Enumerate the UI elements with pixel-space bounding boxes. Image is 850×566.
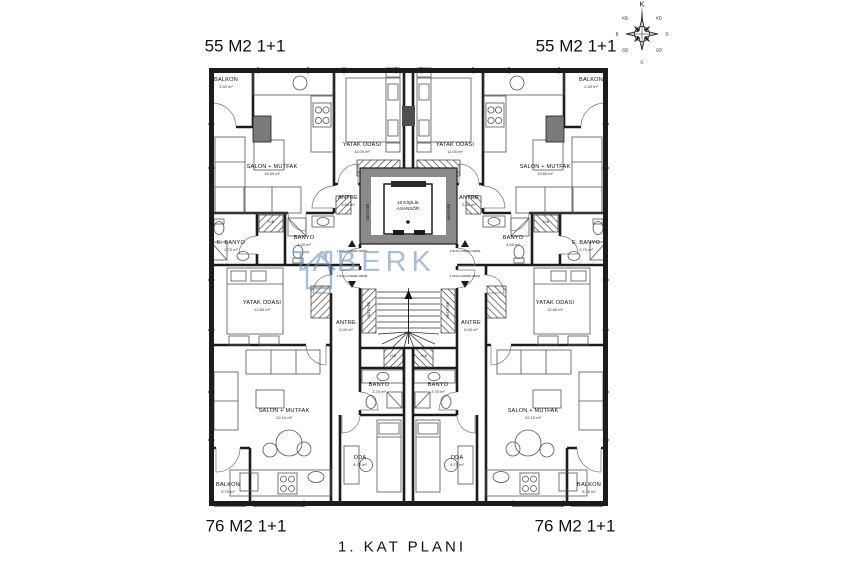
unit-title-top-left: 55 M2 1+1 <box>205 35 286 56</box>
elevator-symbol <box>406 220 410 224</box>
room-label-bl-oda: ODA8.70 m² <box>353 455 367 467</box>
room-label-tr-antre: ANTRE3.60 m² <box>459 195 479 207</box>
spine-wall <box>404 68 413 504</box>
compass-label-s: G <box>640 60 643 65</box>
shaft-label-br-hb: H.B <box>421 354 427 358</box>
compass-label-ne: KD <box>656 16 662 21</box>
vestiyer-label-right-bottom: VESTİYER <box>446 302 450 319</box>
compass-label-e: D <box>665 32 668 37</box>
plan-title: 1. KAT PLANI <box>338 539 466 558</box>
entrance-label-4: 4 NOLU DAİRE GİRİŞİ <box>450 275 481 279</box>
room-label-br-oda: ODA8.70 m² <box>450 455 464 467</box>
room-label-br-banyo: BANYO3.70 m² <box>428 382 449 394</box>
compass-label-se: GD <box>656 48 662 53</box>
compass-label-w: B <box>616 32 619 37</box>
vestiyer-label-right-top: VESTİYER <box>447 204 451 221</box>
elevator-door-left <box>393 230 404 235</box>
room-label-bl-balkon: BALKON5.70 m² <box>216 482 240 494</box>
stairs <box>377 288 440 348</box>
room-label-tr-salon: SALON + MUTFAK19.60 m² <box>520 164 571 176</box>
unit-title-top-right: 55 M2 1+1 <box>536 35 617 56</box>
watermark: TABERK <box>298 246 436 279</box>
unit-title-bottom-left: 76 M2 1+1 <box>206 515 287 536</box>
watermark-house-icon <box>298 246 340 292</box>
room-label-br-balkon: BALKON5.70 m² <box>577 482 601 494</box>
room-label-br-salon: SALON + MUTFAK22.10 m² <box>508 408 559 420</box>
room-label-br-antre: ANTRE6.00 m² <box>461 320 481 332</box>
room-label-tl-ebanyo: E. BANYO2.70 m² <box>217 240 245 252</box>
room-label-tr-banyo: BANYO4.00 m² <box>503 235 524 247</box>
spine-block <box>402 106 415 126</box>
elevator-door-right <box>414 230 425 235</box>
right-half-plan <box>413 67 609 507</box>
room-label-bl-banyo: BANYO3.70 m² <box>369 382 390 394</box>
shaft-label-tl-hb: H.B <box>268 220 274 224</box>
room-label-tr-ebanyo: E. BANYO2.70 m² <box>572 240 600 252</box>
room-label-tr-yatak: YATAK ODASI11.00 m² <box>436 142 474 154</box>
compass-star-icon <box>612 0 672 68</box>
entrance-label-2: 2 NOLU DAİRE GİRİŞİ <box>450 250 481 254</box>
room-label-tl-yatak: YATAK ODASI11.00 m² <box>343 142 381 154</box>
room-label-bl-yatak: YATAK ODASI12.80 m² <box>243 300 281 312</box>
room-label-bl-antre: ANTRE6.00 m² <box>336 320 356 332</box>
room-label-tl-antre: ANTRE3.60 m² <box>338 195 358 207</box>
floorplan-page: 55 M2 1+1 55 M2 1+1 76 M2 1+1 76 M2 1+1 … <box>0 0 850 566</box>
compass-label-sw: GB <box>622 48 628 53</box>
unit-title-bottom-right: 76 M2 1+1 <box>535 515 616 536</box>
room-label-br-yatak: YATAK ODASI12.80 m² <box>536 300 574 312</box>
room-label-tl-salon: SALON + MUTFAK19.60 m² <box>247 164 298 176</box>
vestiyer-label-left-top: VESTİYER <box>366 204 370 221</box>
room-label-tl-balkon: BALKON2.40 m² <box>214 77 238 89</box>
floorplan-drawing <box>0 0 850 566</box>
shaft-label-tr-hb: H.B <box>543 220 549 224</box>
shaft-label-bl-hb: H.B <box>390 354 396 358</box>
room-label-tr-balkon: BALKON2.40 m² <box>579 77 603 89</box>
compass-label-nw: KB <box>622 16 628 21</box>
elevator-label: 10 KİŞİLİK ASANSÖR <box>397 200 419 212</box>
vestiyer-label-left-bottom: VESTİYER <box>367 302 371 319</box>
room-label-bl-salon: SALON + MUTFAK22.10 m² <box>259 408 310 420</box>
compass-label-n: K <box>639 0 644 9</box>
elevator-counterweight <box>391 181 426 187</box>
compass-rose: K KD D GD G GB B KB <box>612 0 672 68</box>
